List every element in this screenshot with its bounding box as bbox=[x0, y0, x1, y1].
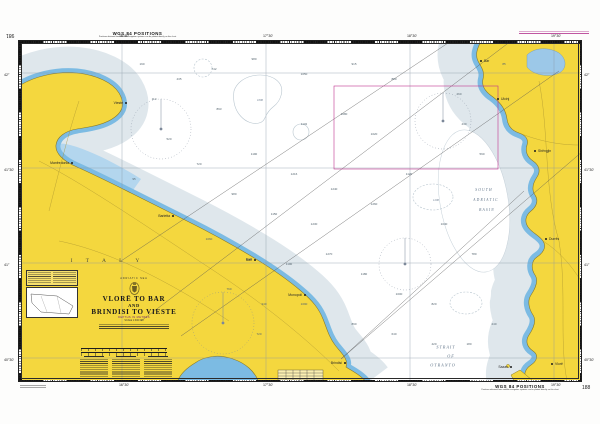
chart-number: 188 bbox=[582, 385, 590, 391]
graticule-label: 41° bbox=[584, 263, 589, 267]
basin-label-1: SOUTH bbox=[475, 188, 493, 192]
copyright-note bbox=[20, 385, 50, 389]
note-column-1 bbox=[80, 356, 108, 380]
tidal-table bbox=[278, 370, 323, 380]
source-data-map bbox=[26, 287, 78, 318]
graticule-label: 41°30' bbox=[4, 168, 14, 172]
strait-of-otranto-label-1: STRAIT bbox=[436, 345, 455, 350]
graticule-label: 16°30' bbox=[119, 383, 129, 387]
note-column-2 bbox=[112, 356, 140, 380]
note-column-3 bbox=[144, 356, 172, 380]
title-region: ADRIATIC SEA bbox=[86, 278, 182, 281]
graticule-label: 16°30' bbox=[119, 34, 129, 38]
graticule-label: 41° bbox=[4, 263, 9, 267]
chart-content: 1904357429801050915880893113210801020119… bbox=[22, 44, 580, 380]
graticule-label: 17°30' bbox=[263, 34, 273, 38]
graticule-label: 40°30' bbox=[4, 358, 14, 362]
wgs-note-bottom-sub: Positions obtained from satellite naviga… bbox=[470, 389, 570, 391]
chart-notes bbox=[80, 356, 172, 380]
strait-of-otranto-label-3: OTRANTO bbox=[430, 363, 456, 368]
graticule-label: 42° bbox=[4, 73, 9, 77]
projection-note bbox=[99, 324, 169, 330]
graticule-label: 40°30' bbox=[584, 358, 594, 362]
chart-border: 1904357429801050915880893113210801020119… bbox=[18, 40, 582, 382]
strait-of-otranto-label-2: OF bbox=[447, 354, 455, 359]
source-data-diagram bbox=[26, 270, 78, 318]
title-scale: SCALE 1:300 000 bbox=[86, 320, 182, 323]
graticule-label: 18°30' bbox=[407, 34, 417, 38]
contour-label-1200: 1200 bbox=[433, 198, 439, 202]
basin-label-3: BASIN bbox=[479, 208, 495, 212]
graticule-label: 17°30' bbox=[263, 383, 273, 387]
graticule-label: 42° bbox=[584, 73, 589, 77]
contour-label-1000: 1000 bbox=[257, 98, 263, 102]
royal-crest-emblem bbox=[129, 282, 140, 295]
adjacent-chart-number: 981 bbox=[6, 32, 14, 38]
wgs-note-top: WGS 84 POSITIONS Positions obtained from… bbox=[90, 31, 185, 38]
graticule-label: 19°30' bbox=[551, 34, 561, 38]
basin-label-2: ADRIATIC bbox=[473, 198, 498, 202]
nautical-chart-page: 981 WGS 84 POSITIONS Positions obtained … bbox=[0, 0, 600, 424]
italy-label: I T A L Y bbox=[71, 258, 146, 264]
title-block: ADRIATIC SEA VLORË TO BAR AND BRINDISI T… bbox=[86, 278, 182, 330]
graticule-label: 19°30' bbox=[551, 383, 561, 387]
wgs-note-top-sub: Positions obtained from satellite naviga… bbox=[90, 36, 185, 38]
source-data-table bbox=[26, 270, 78, 286]
graticule-label: 41°30' bbox=[584, 168, 594, 172]
graticule-label: 18°30' bbox=[407, 383, 417, 387]
title-line-1: VLORË TO BAR bbox=[86, 295, 182, 303]
